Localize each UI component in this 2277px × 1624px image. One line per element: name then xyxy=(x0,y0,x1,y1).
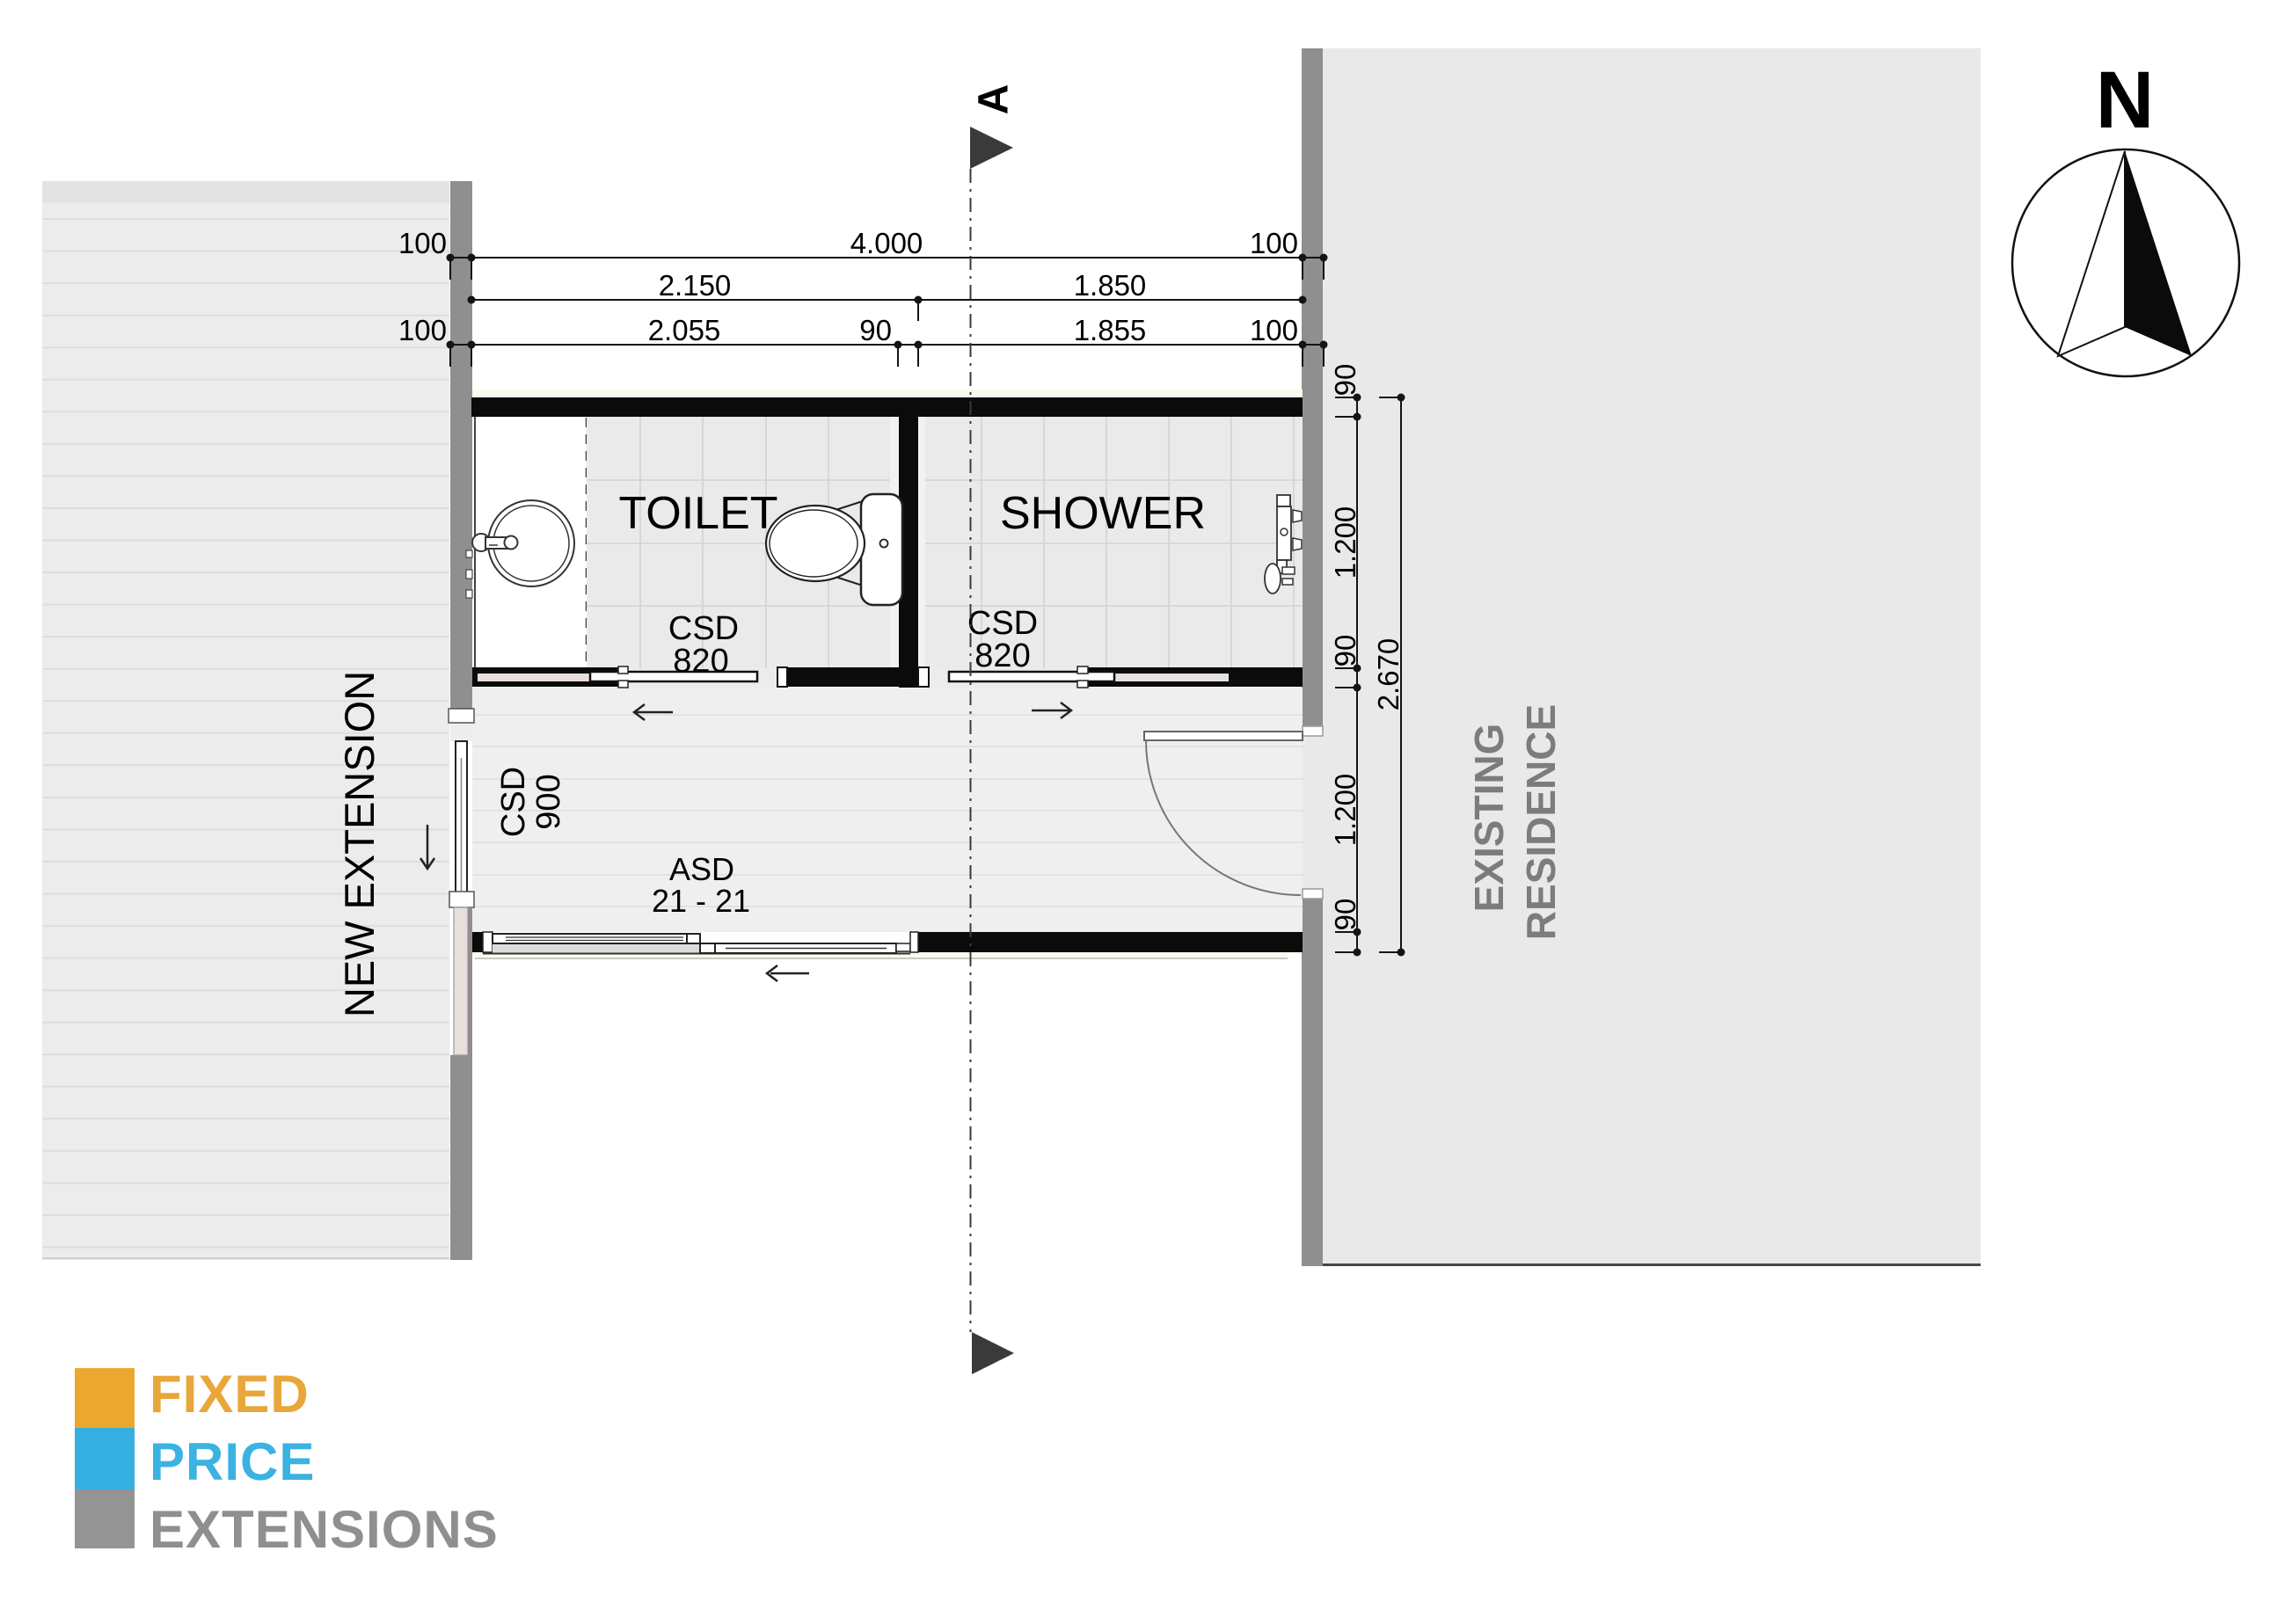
svg-text:CSD: CSD xyxy=(967,605,1038,642)
svg-text:90: 90 xyxy=(859,314,892,346)
svg-text:21 - 21: 21 - 21 xyxy=(652,883,750,919)
svg-text:NEW EXTENSION: NEW EXTENSION xyxy=(336,671,383,1017)
svg-text:2.670: 2.670 xyxy=(1372,638,1405,711)
svg-text:2.150: 2.150 xyxy=(659,269,732,302)
svg-text:100: 100 xyxy=(1250,314,1298,346)
svg-text:90: 90 xyxy=(1329,364,1361,397)
svg-text:CSD: CSD xyxy=(668,610,739,647)
svg-text:1.855: 1.855 xyxy=(1074,314,1147,346)
svg-text:4.000: 4.000 xyxy=(850,227,923,259)
svg-text:EXTENSIONS: EXTENSIONS xyxy=(150,1500,499,1559)
svg-text:820: 820 xyxy=(974,637,1030,674)
svg-text:TOILET: TOILET xyxy=(618,488,777,539)
svg-text:1.850: 1.850 xyxy=(1074,269,1147,302)
svg-text:100: 100 xyxy=(398,314,447,346)
svg-text:N: N xyxy=(2096,55,2154,145)
svg-text:90: 90 xyxy=(1329,899,1361,931)
svg-text:CSD: CSD xyxy=(495,767,532,837)
svg-text:PRICE: PRICE xyxy=(150,1432,315,1491)
svg-text:SHOWER: SHOWER xyxy=(1000,488,1206,539)
svg-text:1.200: 1.200 xyxy=(1329,774,1361,847)
svg-text:100: 100 xyxy=(398,227,447,259)
svg-text:1.200: 1.200 xyxy=(1329,506,1361,579)
svg-text:RESIDENCE: RESIDENCE xyxy=(1518,704,1564,940)
svg-text:EXISTING: EXISTING xyxy=(1466,724,1512,913)
svg-text:820: 820 xyxy=(673,643,728,680)
svg-text:100: 100 xyxy=(1250,227,1298,259)
svg-text:A: A xyxy=(971,84,1018,115)
svg-text:900: 900 xyxy=(530,774,567,829)
svg-text:ASD: ASD xyxy=(669,851,734,887)
svg-text:FIXED: FIXED xyxy=(150,1365,310,1424)
svg-text:90: 90 xyxy=(1329,635,1361,667)
svg-text:2.055: 2.055 xyxy=(648,314,721,346)
